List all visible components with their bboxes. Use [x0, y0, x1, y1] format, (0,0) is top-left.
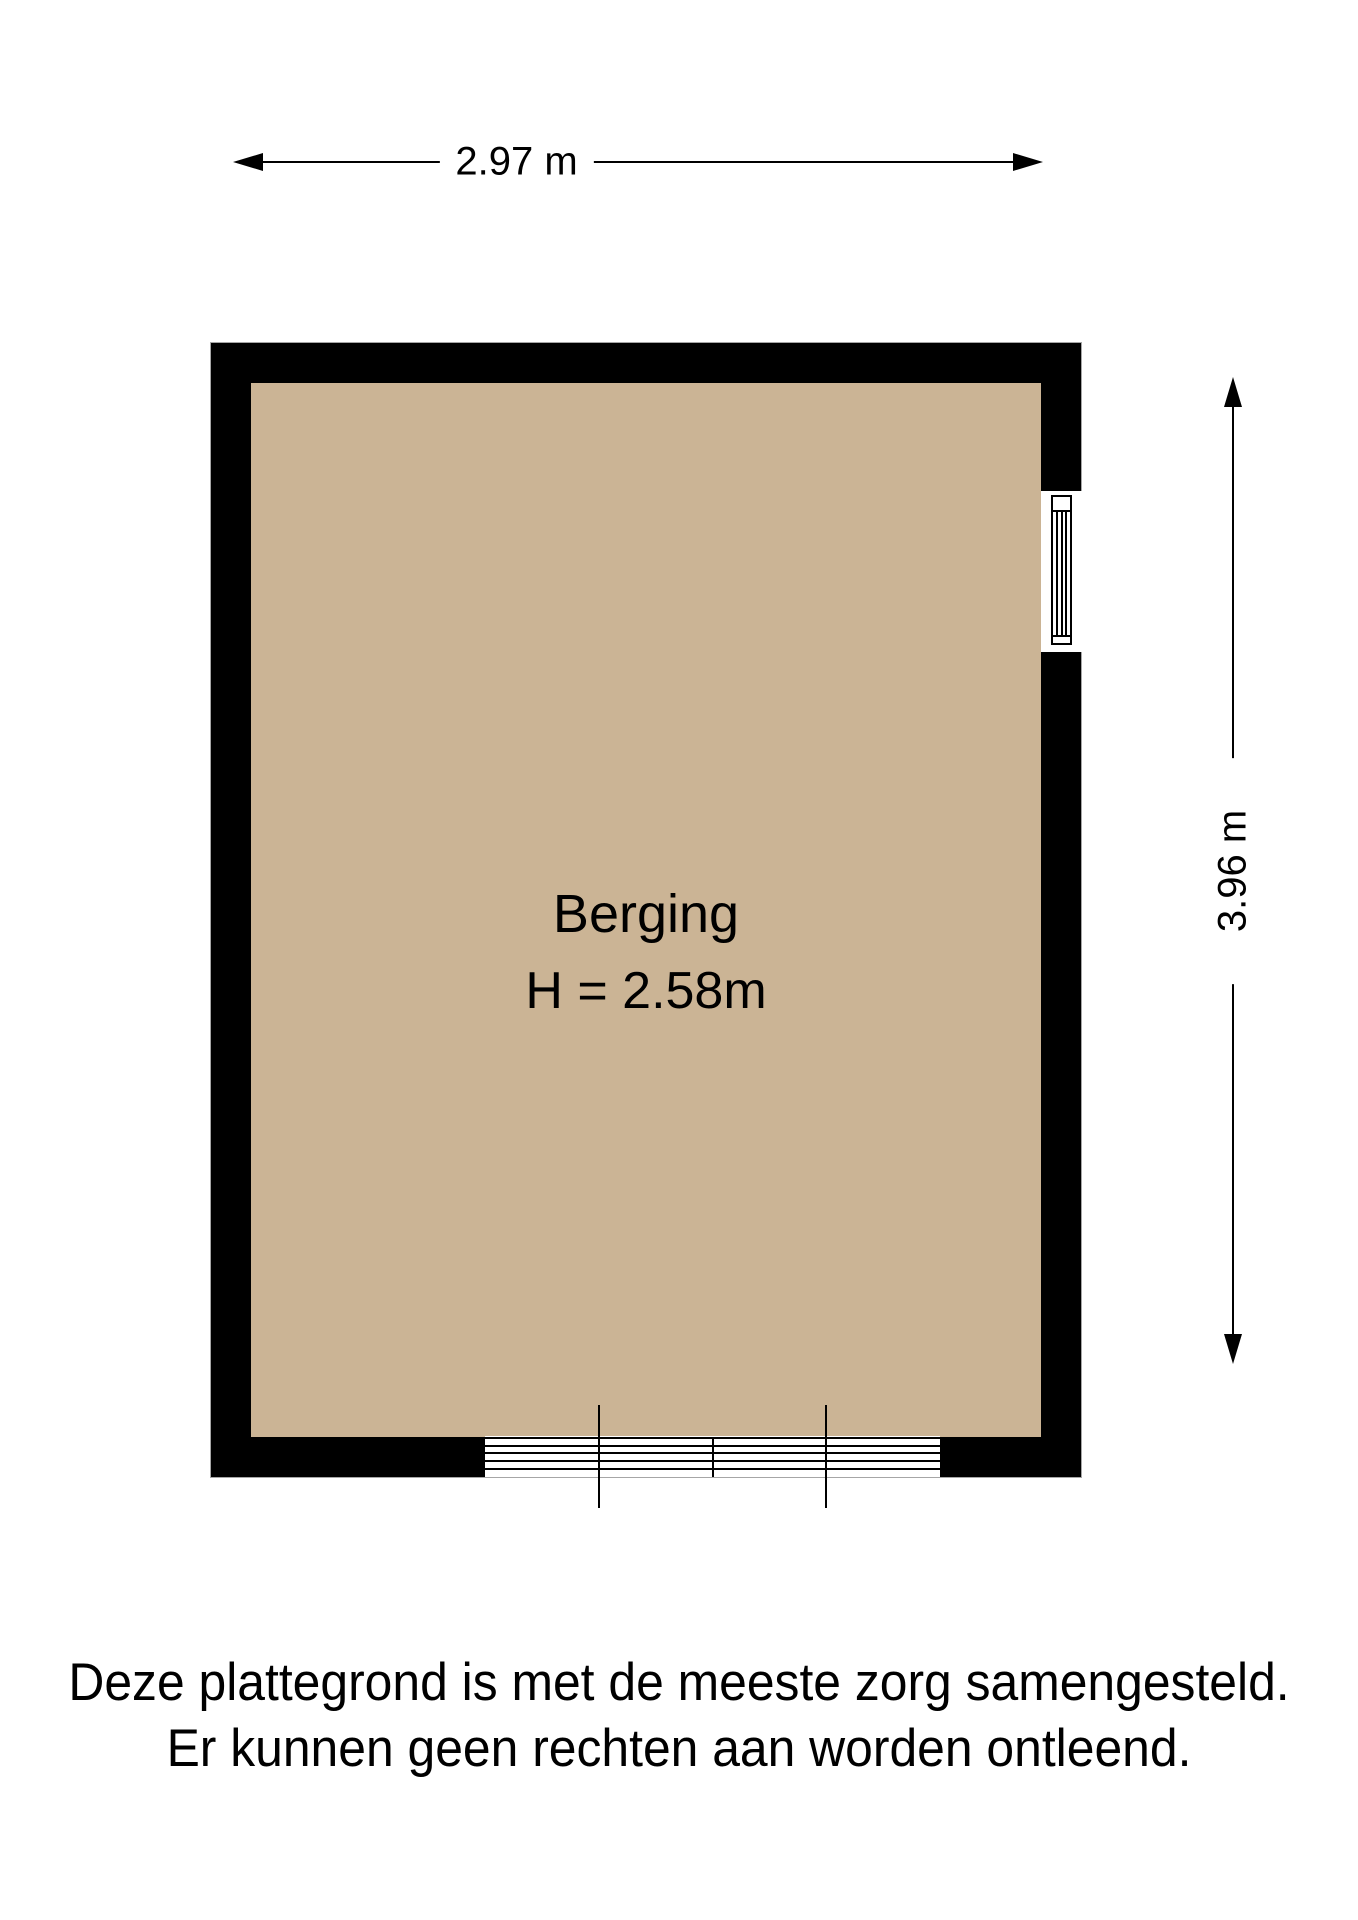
arrow-right-icon — [1013, 153, 1043, 171]
disclaimer-line-1: Deze plattegrond is met de meeste zorg s… — [41, 1650, 1318, 1716]
window-frame — [1051, 495, 1072, 645]
width-dimension-line — [247, 161, 1029, 163]
width-dimension-label: 2.97 m — [439, 140, 593, 185]
width-dimension: 2.97 m — [233, 146, 1043, 178]
window-frame-top — [1053, 497, 1070, 512]
height-dimension-label: 3.96 m — [1211, 757, 1256, 983]
door-mullion — [825, 1405, 827, 1508]
room-berging: Berging H = 2.58m — [211, 343, 1081, 1477]
room-name-label: Berging — [553, 883, 739, 945]
door-mullion — [598, 1405, 600, 1508]
window-frame-bottom — [1053, 635, 1070, 643]
sliding-door-icon — [485, 1436, 940, 1477]
room-height-label: H = 2.58m — [525, 961, 766, 1021]
arrow-down-icon — [1224, 1334, 1242, 1364]
height-dimension: 3.96 m — [1218, 377, 1248, 1364]
window-glass — [1053, 512, 1070, 635]
window-icon — [1041, 491, 1082, 652]
door-mullion — [712, 1437, 714, 1477]
disclaimer-line-2: Er kunnen geen rechten aan worden ontlee… — [41, 1716, 1318, 1782]
floorplan-canvas: 2.97 m Berging H = 2.58m 3.9 — [0, 0, 1358, 1920]
disclaimer: Deze plattegrond is met de meeste zorg s… — [41, 1650, 1318, 1781]
